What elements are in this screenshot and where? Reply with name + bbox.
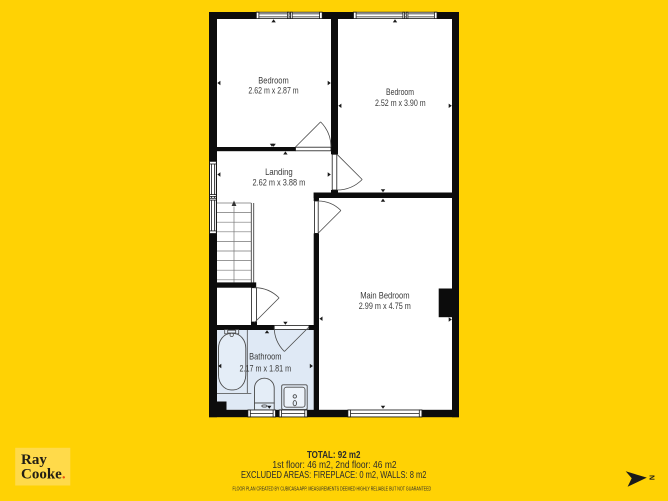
svg-text:EXCLUDED AREAS: FIREPLACE: 0 m: EXCLUDED AREAS: FIREPLACE: 0 m2, WALLS: … [241,469,427,481]
svg-text:2.62 m x 3.88 m: 2.62 m x 3.88 m [253,178,306,188]
svg-text:Bedroom: Bedroom [386,87,414,97]
svg-text:2.99 m x 4.75 m: 2.99 m x 4.75 m [359,301,411,311]
svg-text:2.52 m x 3.90 m: 2.52 m x 3.90 m [375,98,426,108]
svg-text:Main Bedroom: Main Bedroom [360,290,410,300]
svg-text:Bedroom: Bedroom [258,75,289,85]
svg-text:FLOOR PLAN CREATED BY CUBICASA: FLOOR PLAN CREATED BY CUBICASA APP. MEAS… [232,486,431,492]
svg-text:2.62 m x 2.87 m: 2.62 m x 2.87 m [248,86,299,96]
svg-text:2.17 m x 1.81 m: 2.17 m x 1.81 m [240,364,292,374]
svg-text:N: N [648,475,655,480]
svg-text:Landing: Landing [265,167,293,177]
svg-text:Bathroom: Bathroom [249,352,282,362]
svg-text:Cooke.: Cooke. [21,466,66,482]
